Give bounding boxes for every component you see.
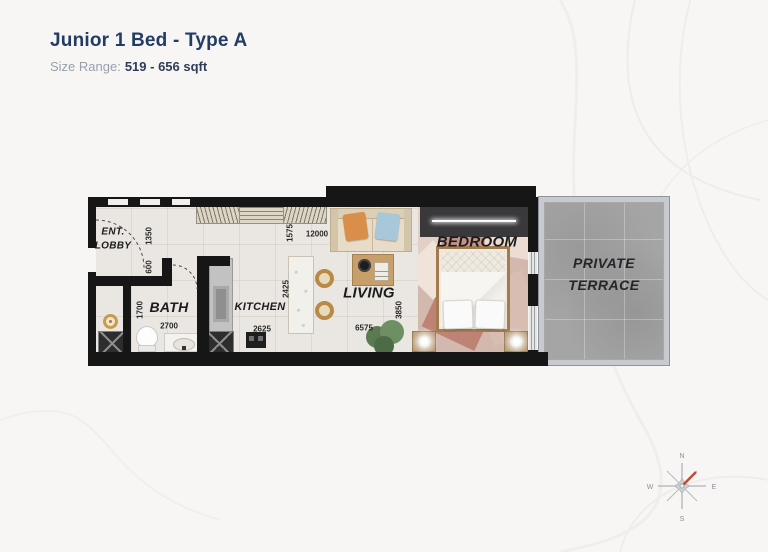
dimension-bath-width: 2700	[160, 322, 178, 331]
kitchen-sink-unit	[213, 286, 229, 322]
kitchen-cooktop	[246, 332, 266, 348]
sofa-pillow-orange	[342, 212, 369, 242]
plan-header: Junior 1 Bed - Type A Size Range:519 - 6…	[50, 30, 247, 74]
wall-shower-divider	[123, 286, 131, 352]
dimension-bath-height: 1700	[136, 301, 145, 319]
room-label-living: LIVING	[343, 285, 395, 302]
sofa-pillow-blue	[374, 212, 400, 242]
wall-right-lower	[528, 350, 538, 366]
private-terrace-area: PRIVATE TERRACE	[538, 196, 670, 366]
lamp-glow	[510, 335, 523, 348]
corridor-wardrobe	[196, 206, 327, 224]
bedroom-window	[529, 252, 537, 274]
wall-bath-door-jamb	[162, 258, 172, 276]
compass-west-label: W	[647, 484, 654, 491]
dimension-kitchen-width: 2625	[253, 325, 271, 334]
size-range: Size Range:519 - 656 sqft	[50, 59, 247, 74]
wall-bottom	[88, 352, 548, 366]
room-label-bath: BATH	[149, 299, 188, 315]
terrace-label-line2: TERRACE	[568, 277, 639, 293]
sink-tap	[182, 346, 186, 350]
shower-fixture	[103, 314, 118, 329]
closet-rail	[432, 220, 516, 222]
wardrobe-hanging-section	[197, 207, 240, 223]
wall-lobby-bottom	[88, 276, 172, 286]
table-decor-disc	[358, 259, 371, 272]
compass-east-label: E	[712, 484, 717, 491]
dimension-living-width: 6575	[355, 324, 373, 333]
kitchen-island	[288, 256, 314, 334]
nightstand	[412, 331, 436, 352]
bar-stool	[315, 301, 334, 320]
room-label-bedroom: BEDROOM	[437, 234, 517, 251]
bed-pillow	[443, 299, 474, 329]
page-title: Junior 1 Bed - Type A	[50, 30, 247, 52]
dimension-lobby-entry: 600	[145, 260, 154, 273]
terrace-label-line1: PRIVATE	[573, 255, 635, 271]
table-decor-book	[374, 262, 389, 281]
size-range-label: Size Range:	[50, 59, 121, 74]
wardrobe-hanging-section	[284, 207, 326, 223]
lamp-glow	[418, 335, 431, 348]
room-label-lobby-line2: LOBBY	[95, 241, 132, 252]
dimension-living-height: 3850	[395, 301, 404, 319]
nightstand	[504, 331, 528, 352]
wall-top-band	[326, 186, 536, 207]
compass-rose-icon: N E S W	[638, 448, 726, 526]
terrace-sliding-door	[529, 306, 537, 350]
bedroom-closet	[420, 207, 528, 237]
wall-kitchen-side	[197, 256, 209, 352]
coffee-table	[352, 254, 394, 286]
room-label-lobby-line1: ENT.	[101, 227, 124, 238]
compass-south-label: S	[680, 516, 685, 523]
wall-right-middle	[528, 274, 538, 306]
sofa-armrest	[404, 209, 411, 251]
wall-right-upper	[528, 197, 538, 252]
dimension-wardrobe-depth: 1575	[286, 224, 295, 242]
room-label-kitchen: KITCHEN	[235, 301, 286, 313]
floorplan-page: Junior 1 Bed - Type A Size Range:519 - 6…	[0, 0, 768, 552]
toilet-tank	[138, 345, 156, 352]
dimension-kitchen-height: 2425	[282, 280, 291, 298]
kitchen-cabinet	[209, 258, 233, 332]
dimension-total-width: 12000	[306, 230, 328, 239]
bar-stool	[315, 269, 334, 288]
bed-pillow	[475, 299, 506, 329]
sofa-armrest	[331, 209, 338, 251]
compass-north-label: N	[679, 453, 684, 460]
wall-notch	[140, 199, 160, 205]
dimension-lobby-width: 1350	[145, 227, 154, 245]
size-range-value: 519 - 656 sqft	[125, 59, 207, 74]
wall-notch	[172, 199, 190, 205]
bed-headboard	[441, 251, 505, 272]
wardrobe-shelf-section	[240, 207, 283, 223]
wall-notch	[108, 199, 128, 205]
